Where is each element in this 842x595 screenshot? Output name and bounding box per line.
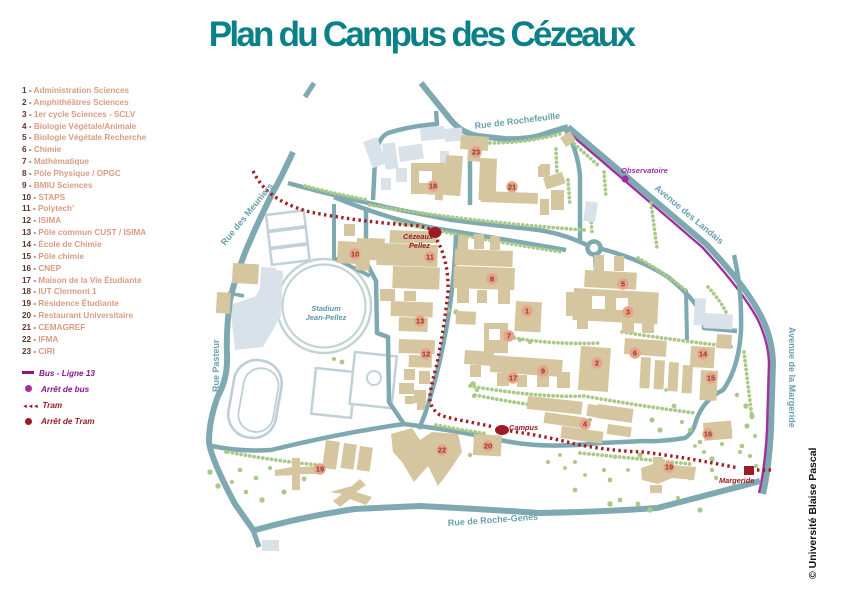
svg-text:23: 23	[472, 148, 480, 157]
svg-text:19: 19	[665, 463, 673, 472]
svg-text:9: 9	[541, 367, 545, 376]
svg-text:19: 19	[316, 465, 324, 474]
svg-text:11: 11	[426, 253, 434, 262]
svg-text:7: 7	[507, 332, 511, 341]
svg-text:12: 12	[422, 350, 430, 359]
svg-text:Rue de Rochefeuille: Rue de Rochefeuille	[474, 111, 561, 131]
svg-text:3: 3	[626, 308, 630, 317]
svg-text:21: 21	[508, 183, 516, 192]
svg-text:Rue de Roche-Genès: Rue de Roche-Genès	[447, 512, 538, 528]
svg-text:Margeride: Margeride	[719, 476, 754, 485]
svg-text:10: 10	[351, 250, 359, 259]
svg-text:16: 16	[704, 430, 712, 439]
svg-text:18: 18	[429, 182, 437, 191]
svg-text:2: 2	[595, 359, 599, 368]
svg-text:13: 13	[416, 317, 424, 326]
svg-text:Cézeaux: Cézeaux	[403, 232, 434, 241]
svg-text:Rue Pasteur: Rue Pasteur	[211, 339, 221, 392]
svg-text:Avenue de la Margeride: Avenue de la Margeride	[787, 327, 797, 428]
svg-text:5: 5	[621, 280, 625, 289]
svg-text:Jean-Pellez: Jean-Pellez	[306, 313, 347, 322]
svg-text:8: 8	[490, 275, 494, 284]
svg-text:Stadium: Stadium	[311, 304, 341, 313]
svg-text:Pellez: Pellez	[409, 241, 430, 250]
svg-text:14: 14	[699, 350, 708, 359]
svg-text:20: 20	[484, 442, 492, 451]
svg-text:Campus: Campus	[509, 423, 538, 432]
svg-text:17: 17	[509, 374, 517, 383]
svg-text:Observatoire: Observatoire	[621, 166, 669, 175]
svg-text:1: 1	[525, 307, 529, 316]
svg-text:22: 22	[438, 446, 446, 455]
svg-text:6: 6	[633, 349, 637, 358]
svg-text:15: 15	[707, 374, 715, 383]
